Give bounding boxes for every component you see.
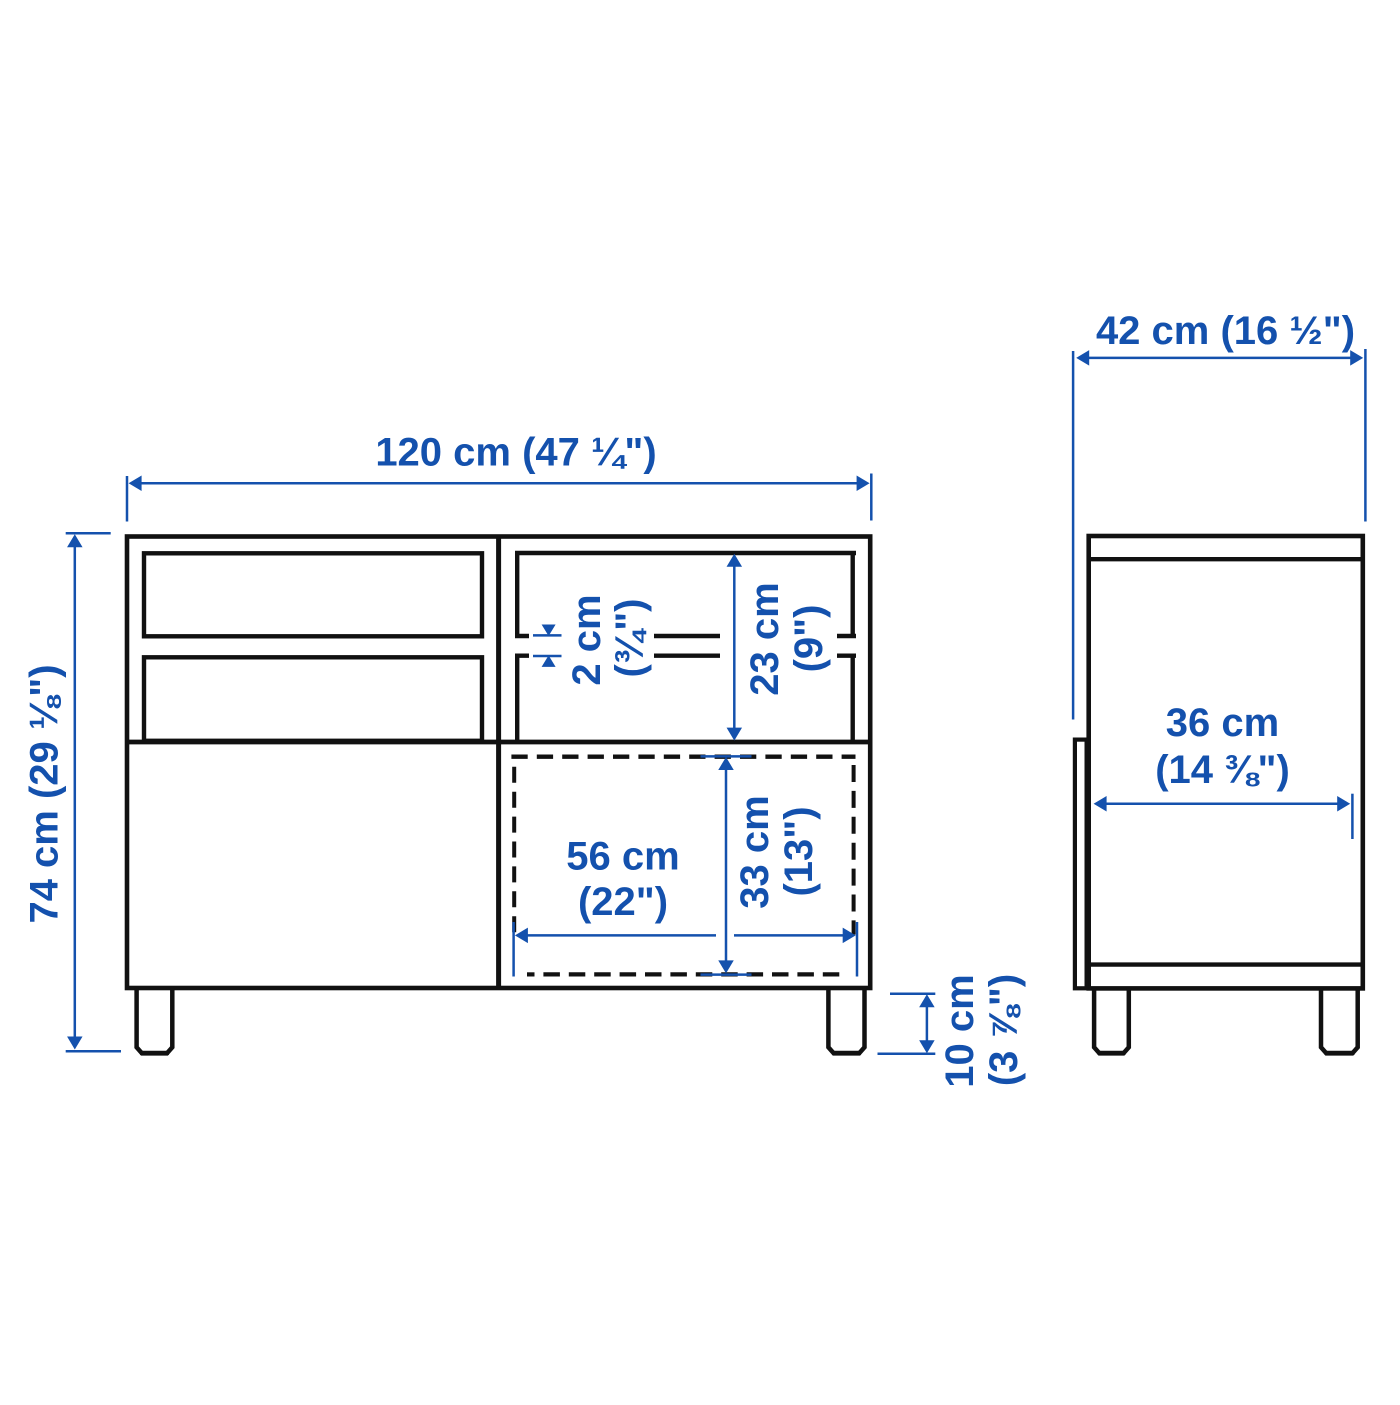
svg-text:(¾"): (¾") bbox=[608, 599, 652, 678]
svg-text:36 cm: 36 cm bbox=[1166, 701, 1279, 745]
svg-text:33 cm: 33 cm bbox=[733, 795, 777, 908]
svg-text:2 cm: 2 cm bbox=[565, 594, 609, 685]
svg-text:42 cm (16 ½"): 42 cm (16 ½") bbox=[1096, 309, 1355, 353]
svg-text:10 cm: 10 cm bbox=[938, 974, 982, 1087]
svg-text:74 cm (29 ⅛"): 74 cm (29 ⅛") bbox=[23, 664, 67, 923]
svg-text:(13"): (13") bbox=[777, 806, 821, 896]
svg-text:120 cm (47 ¼"): 120 cm (47 ¼") bbox=[375, 431, 656, 475]
svg-text:23 cm: 23 cm bbox=[743, 582, 787, 695]
svg-text:56 cm: 56 cm bbox=[566, 835, 679, 879]
svg-text:(14 ⅜"): (14 ⅜") bbox=[1155, 748, 1290, 792]
svg-text:(22"): (22") bbox=[578, 880, 668, 924]
svg-text:(3 ⅞"): (3 ⅞") bbox=[982, 974, 1026, 1086]
svg-text:(9"): (9") bbox=[787, 605, 831, 673]
